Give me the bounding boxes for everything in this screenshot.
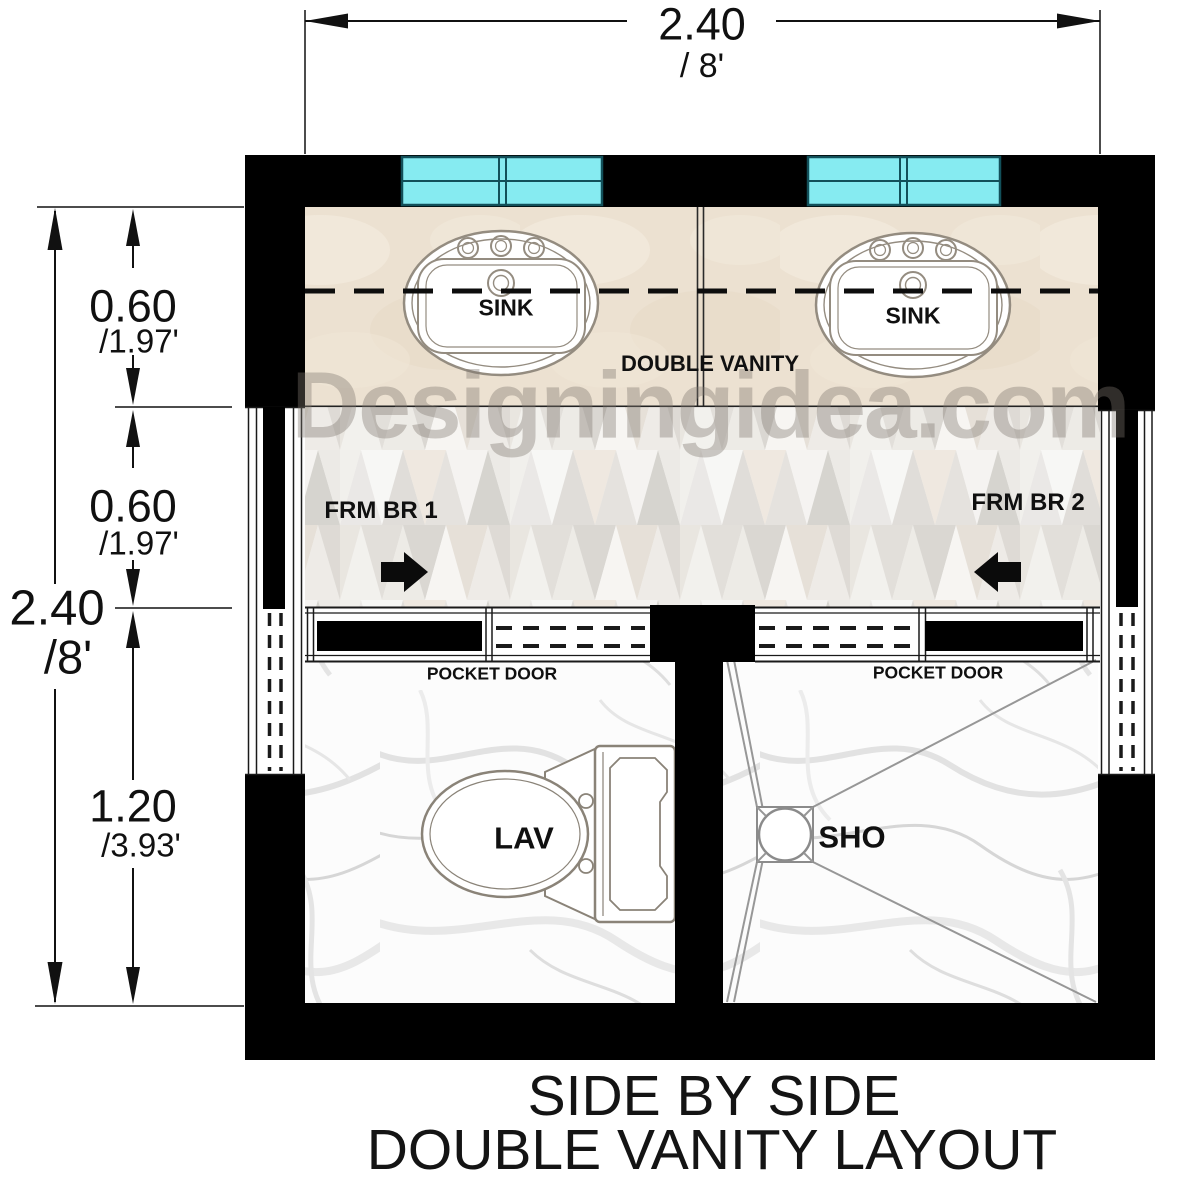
top-dimension-imperial: / 8' — [680, 49, 724, 83]
wall-bottom — [245, 1003, 1155, 1060]
sink-left-label: SINK — [479, 297, 534, 320]
from-bedroom-2-label: FRM BR 2 — [971, 491, 1084, 515]
wall-center-post — [650, 605, 755, 662]
rooms-depth-imperial: /3.93' — [101, 829, 181, 862]
shower-drain — [759, 809, 811, 861]
left-door-panel — [263, 407, 285, 609]
toilet-label: LAV — [494, 823, 554, 854]
sink-right-label: SINK — [886, 305, 941, 328]
top-dimension-metric: 2.40 — [658, 2, 746, 47]
floor-plan-canvas: Designingidea.com 2.40 / 8' 0.60 /1.97' … — [0, 0, 1200, 1196]
shower-label: SHO — [818, 822, 885, 853]
left-wall-door-opening — [245, 407, 305, 775]
pocket-door-right-label: POCKET DOOR — [873, 664, 1003, 682]
wall-top — [245, 155, 1155, 207]
rooms-depth-metric: 1.20 — [89, 784, 177, 829]
from-bedroom-1-label: FRM BR 1 — [324, 499, 437, 523]
left-total-imperial: /8' — [44, 634, 92, 681]
right-wall-door-opening — [1098, 410, 1155, 775]
wall-room-divider — [675, 662, 723, 1003]
pocket-door-panel-right — [925, 621, 1083, 651]
vanity-depth-imperial: /1.97' — [99, 325, 179, 358]
hallway-depth-metric: 0.60 — [89, 484, 177, 529]
plan-title-line2: DOUBLE VANITY LAYOUT — [367, 1117, 1058, 1183]
pocket-door-left-label: POCKET DOOR — [427, 665, 557, 683]
left-total-metric: 2.40 — [9, 585, 104, 634]
double-vanity-label: DOUBLE VANITY — [621, 353, 799, 375]
pocket-door-panel-left — [317, 621, 482, 651]
floor-plan-drawing — [0, 0, 1200, 1196]
hallway-depth-imperial: /1.97' — [99, 527, 179, 560]
